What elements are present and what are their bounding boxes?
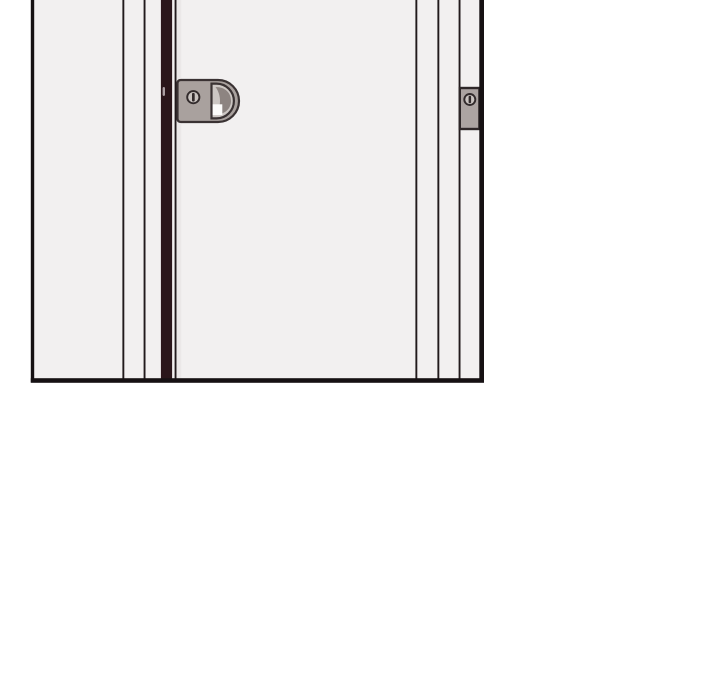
door-right-edge-line (415, 0, 417, 379)
panel-artwork (0, 0, 720, 700)
frame-line-right-outer (459, 0, 461, 379)
panel-border-left (31, 0, 34, 383)
door-latch (178, 80, 240, 122)
comic-panel (31, 0, 484, 383)
panel-background (33, 0, 481, 380)
panel-border-right (479, 0, 484, 383)
latch-highlight-square (213, 104, 223, 115)
comic-page (0, 0, 720, 700)
frame-line-left-outer (122, 0, 124, 379)
latch-screw-slot (192, 93, 195, 102)
door-left-edge-line (175, 0, 177, 379)
strike-plate-screw-slot (469, 96, 472, 104)
door-gap-highlight (163, 87, 165, 96)
frame-line-left-inner (144, 0, 146, 379)
door-gap-strip (161, 0, 172, 379)
door-edge-shadow (177, 0, 182, 379)
panel-border-bottom (31, 378, 484, 383)
frame-line-right-inner (437, 0, 439, 379)
strike-plate (460, 88, 480, 129)
